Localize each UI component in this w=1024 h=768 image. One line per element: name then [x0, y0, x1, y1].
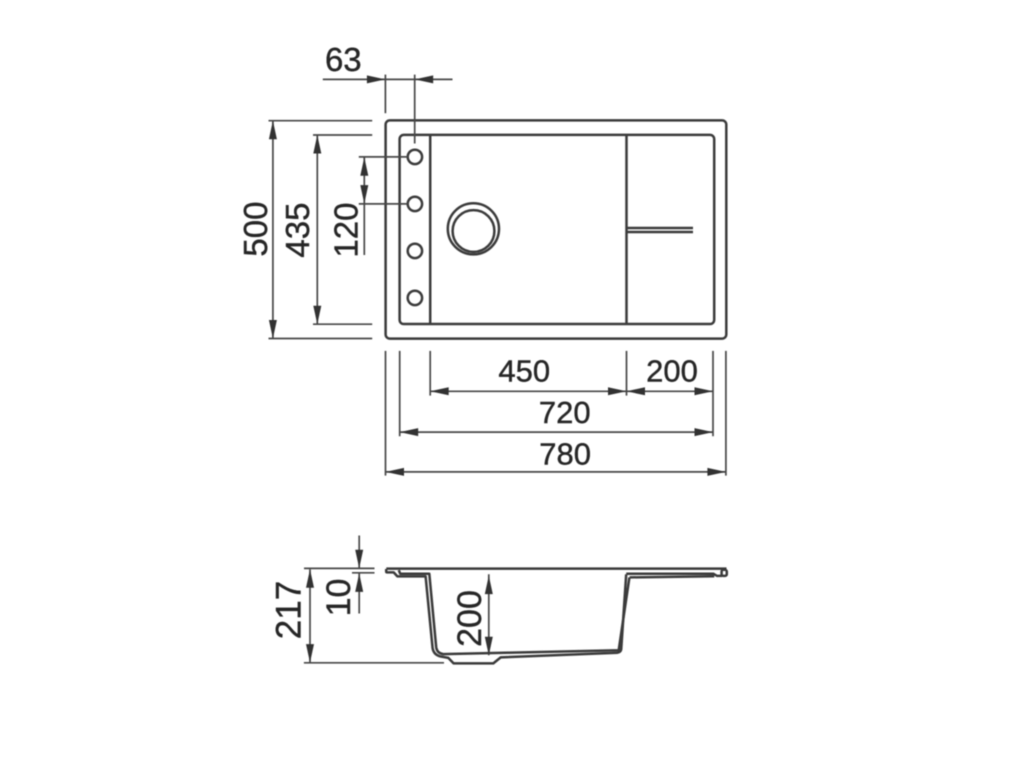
svg-text:200: 200	[451, 590, 489, 647]
svg-text:500: 500	[237, 202, 274, 257]
svg-text:10: 10	[320, 579, 358, 617]
svg-text:780: 780	[539, 437, 591, 472]
svg-text:120: 120	[328, 203, 365, 258]
svg-text:435: 435	[279, 203, 316, 258]
svg-text:217: 217	[270, 581, 309, 639]
svg-text:63: 63	[325, 41, 362, 78]
svg-text:450: 450	[498, 354, 550, 389]
svg-text:200: 200	[646, 354, 698, 389]
svg-text:720: 720	[539, 395, 591, 430]
